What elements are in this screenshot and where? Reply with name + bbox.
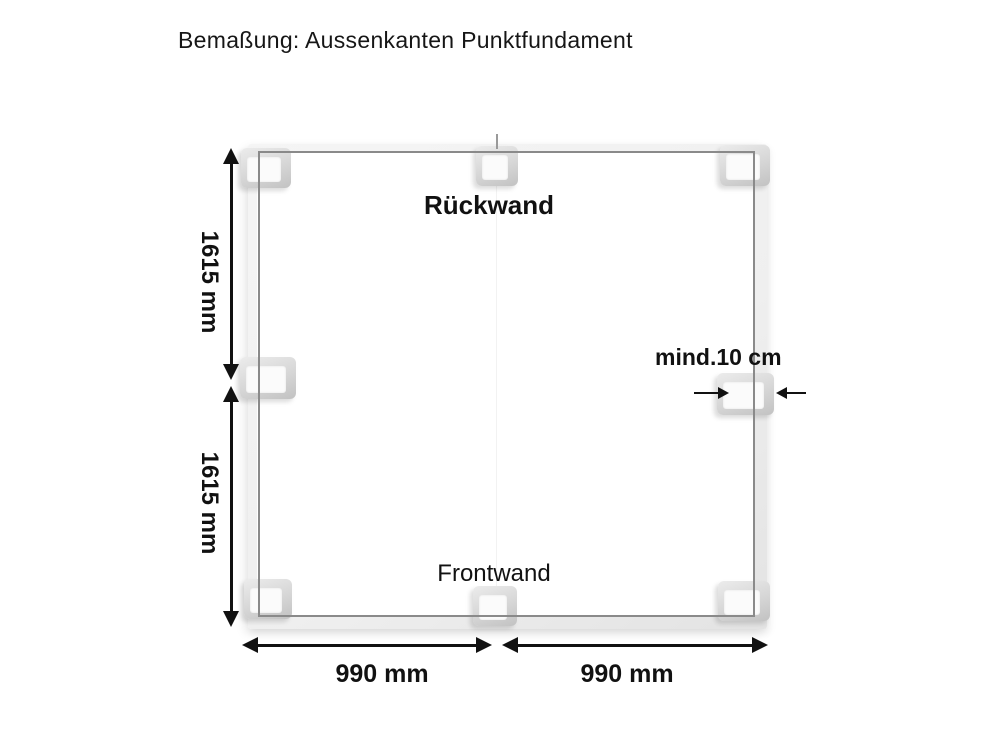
dim-arrow-left-icon	[502, 637, 518, 653]
dimension-line-bottom-left	[242, 637, 492, 653]
frame-edge-left	[258, 151, 260, 617]
foundation-block-bottom-left	[244, 579, 292, 619]
front-wall-label: Frontwand	[394, 560, 594, 588]
dim-arrow-up-icon	[223, 386, 239, 402]
dimension-line-left-lower	[223, 386, 239, 627]
dim-arrow-right-icon	[752, 637, 768, 653]
dimension-line	[518, 644, 752, 647]
frame-edge-right	[753, 151, 755, 617]
dimension-line-left-upper	[223, 148, 239, 380]
dimension-line	[258, 644, 476, 647]
dimension-line-bottom-right	[502, 637, 768, 653]
foundation-block-bottom-center	[473, 586, 517, 626]
foundation-frame-floor	[257, 152, 755, 616]
clearance-arrow-pointing-left	[776, 387, 806, 399]
clearance-arrow-right-icon	[718, 387, 729, 399]
diagram-canvas: Bemaßung: Aussenkanten Punktfundament	[0, 0, 1000, 750]
dimension-label-left-upper: 1615 mm	[195, 212, 223, 352]
clearance-arrow-left-icon	[776, 387, 787, 399]
dimension-label-left-lower: 1615 mm	[195, 433, 223, 573]
min-clearance-label: mind.10 cm	[655, 344, 782, 371]
floor-center-seam	[496, 153, 497, 615]
frame-edge-bottom	[258, 615, 755, 617]
dim-arrow-down-icon	[223, 364, 239, 380]
arrow-line	[787, 392, 806, 394]
dimension-label-bottom-left: 990 mm	[302, 660, 462, 689]
dim-arrow-up-icon	[223, 148, 239, 164]
dim-arrow-down-icon	[223, 611, 239, 627]
dimension-line	[230, 402, 233, 611]
dim-arrow-left-icon	[242, 637, 258, 653]
dimension-line	[230, 164, 233, 364]
arrow-line	[694, 392, 718, 394]
back-wall-label: Rückwand	[389, 190, 589, 221]
clearance-arrow-pointing-right	[694, 387, 729, 399]
dimension-label-bottom-right: 990 mm	[547, 660, 707, 689]
frame-edge-top	[258, 151, 755, 153]
page-title: Bemaßung: Aussenkanten Punktfundament	[178, 27, 633, 54]
foundation-block-top-left	[241, 148, 291, 188]
foundation-block-middle-left	[240, 357, 296, 399]
dim-arrow-right-icon	[476, 637, 492, 653]
top-center-mark	[496, 134, 498, 149]
